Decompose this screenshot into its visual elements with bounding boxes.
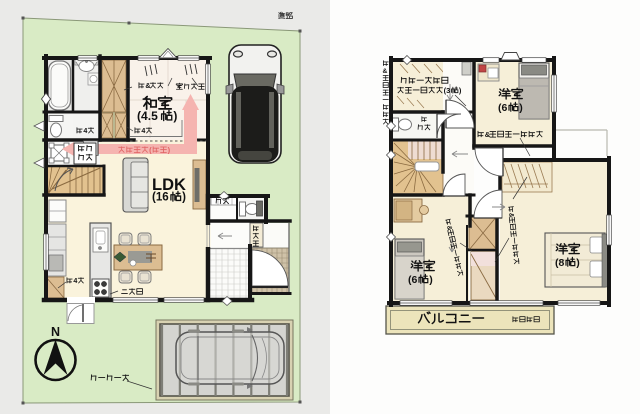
svg-text:N: N (51, 325, 60, 339)
svg-text:): ) (519, 102, 523, 114)
svg-text:&: & (145, 82, 150, 90)
svg-text:(3: (3 (444, 86, 451, 95)
svg-text:4: 4 (83, 127, 87, 135)
svg-text:&: & (383, 68, 388, 75)
svg-text:): ) (182, 192, 186, 204)
svg-text:(16: (16 (152, 192, 169, 204)
svg-text:): ) (429, 274, 433, 286)
svg-text:): ) (173, 109, 177, 123)
svg-text:(8: (8 (555, 257, 564, 269)
svg-text:&: & (507, 213, 514, 219)
svg-text:(6: (6 (408, 274, 417, 286)
svg-text:(4.5: (4.5 (137, 109, 158, 123)
svg-text:): ) (576, 257, 580, 269)
svg-text:(6: (6 (498, 102, 507, 114)
svg-text:4: 4 (73, 277, 77, 285)
svg-text:4: 4 (141, 127, 145, 135)
